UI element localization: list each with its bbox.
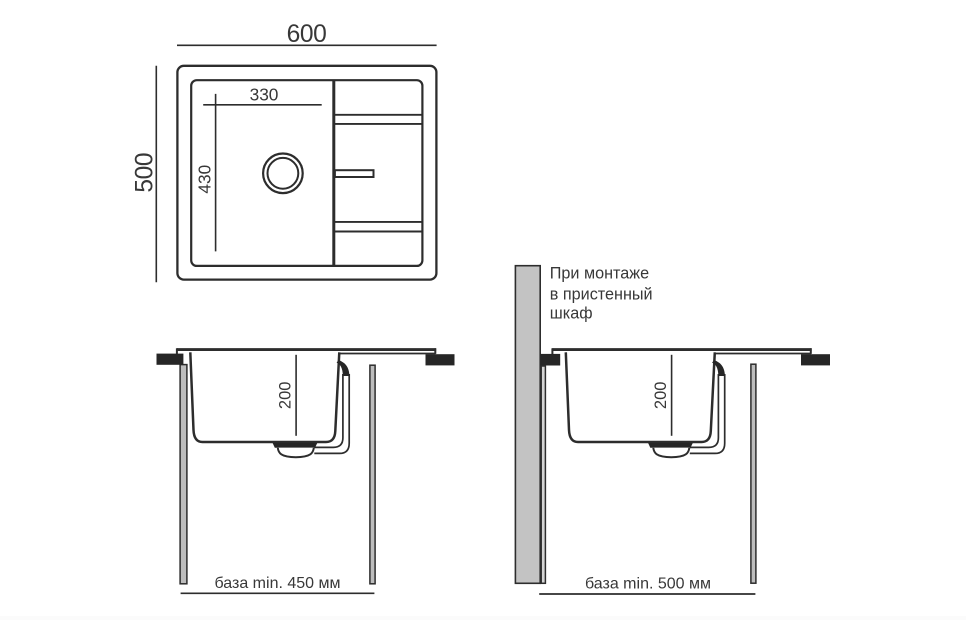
svg-text:500: 500 [131,153,158,193]
svg-text:база min. 450 мм: база min. 450 мм [214,575,340,592]
svg-text:база min. 500 мм: база min. 500 мм [585,576,711,593]
svg-text:600: 600 [287,21,327,48]
svg-text:430: 430 [194,165,214,194]
svg-text:При монтаже: При монтаже [550,265,649,283]
svg-text:в пристенный: в пристенный [550,285,653,303]
svg-text:330: 330 [250,84,279,104]
svg-text:шкаф: шкаф [550,304,593,322]
